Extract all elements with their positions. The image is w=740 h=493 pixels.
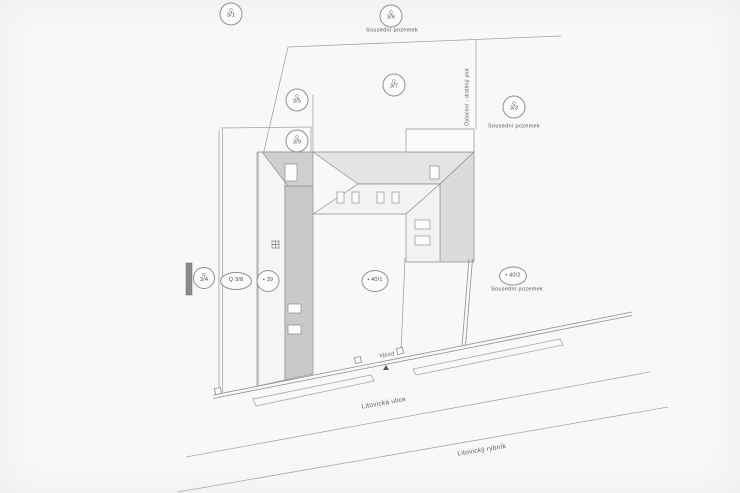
parcel-40-2-number: • 40/2 bbox=[505, 273, 520, 279]
site-plan: Q3/1Q3/6Q3/5Q3/7Q3/9Q3/3Q3/4Q 3/8• 39• 4… bbox=[0, 0, 740, 493]
parcel-3-5-number: 3/5 bbox=[293, 100, 301, 106]
parcel-3-8-number: Q 3/8 bbox=[229, 278, 243, 284]
street-lines bbox=[178, 339, 668, 492]
parcel-3-9-marker: Q3/9 bbox=[286, 130, 309, 153]
parcel-3-5-marker: Q3/5 bbox=[286, 89, 309, 112]
site-plan-linework bbox=[0, 0, 740, 493]
parcel-3-1-number: 3/1 bbox=[227, 14, 235, 20]
parcel-3-6-number: 3/6 bbox=[387, 16, 395, 22]
neighbor-plot-top-label: Sousední pozemek bbox=[366, 28, 418, 34]
parcel-3-8-marker: Q 3/8 bbox=[220, 272, 252, 290]
gate-bar bbox=[186, 263, 192, 295]
neighbor-plot-bottom-right-label: Sousední pozemek bbox=[491, 287, 543, 293]
parcel-3-4-marker: Q3/4 bbox=[193, 267, 215, 289]
neighbor-plot-right-label: Sousední pozemek bbox=[488, 124, 540, 130]
building-39-marker: • 39 bbox=[257, 270, 280, 292]
parcel-40-1-marker: • 40/1 bbox=[362, 270, 389, 292]
parcel-3-7-number: 3/7 bbox=[390, 85, 398, 91]
parcel-3-6-marker: Q3/6 bbox=[380, 5, 403, 28]
building-39-number: • 39 bbox=[263, 278, 273, 284]
parcel-3-4-number: 3/4 bbox=[200, 278, 208, 284]
parcel-3-3-number: 3/3 bbox=[510, 107, 518, 113]
parcel-40-1-number: • 40/1 bbox=[367, 278, 382, 284]
parcel-3-1-marker: Q3/1 bbox=[220, 3, 243, 26]
parcel-3-7-marker: Q3/7 bbox=[383, 74, 406, 97]
parcel-3-9-number: 3/9 bbox=[293, 141, 301, 147]
parcel-3-3-marker: Q3/3 bbox=[503, 96, 526, 119]
entrance-arrow-icon bbox=[383, 365, 389, 370]
fence-note-label: Oplocení - drátěný plot bbox=[466, 68, 471, 125]
parcel-40-2-marker: • 40/2 bbox=[499, 267, 527, 286]
